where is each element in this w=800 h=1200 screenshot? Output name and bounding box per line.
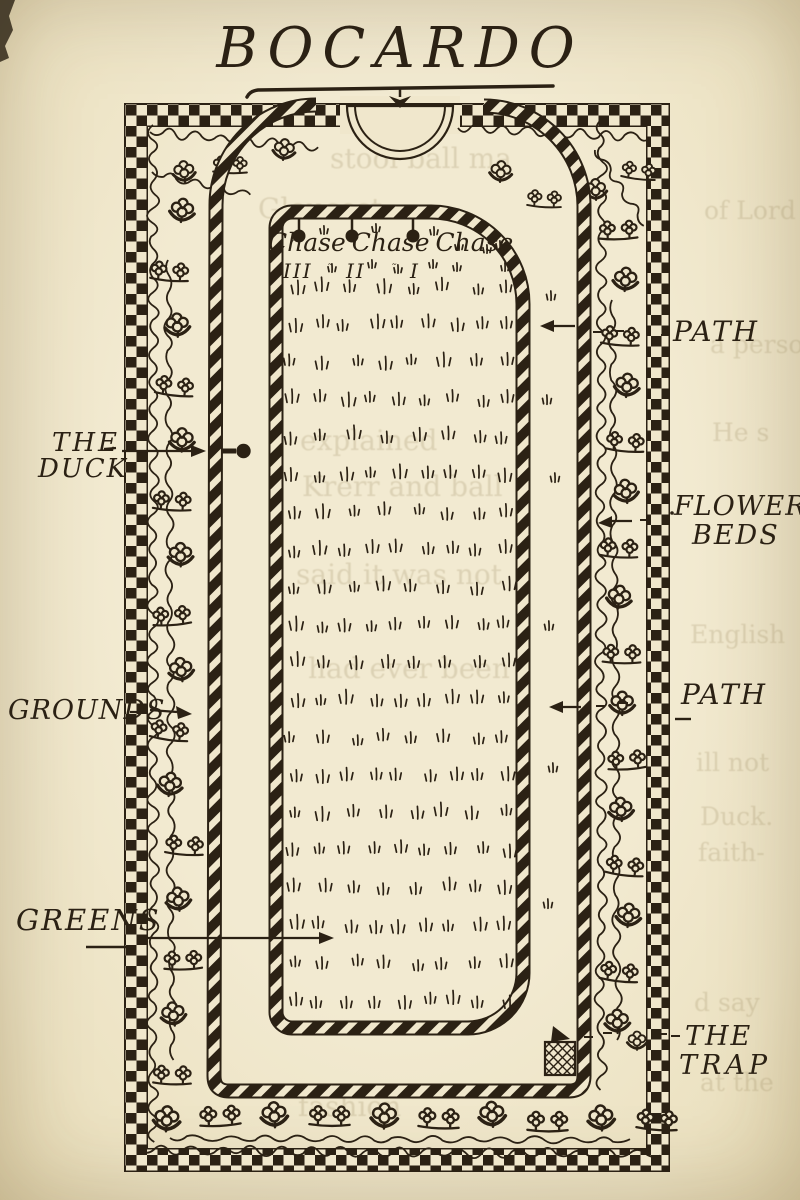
chase-numeral: II: [346, 259, 366, 283]
entrance-arch: [339, 104, 461, 159]
label-grounds: GROUNDS: [8, 697, 166, 724]
label-flower-beds-line2: BEDS: [692, 522, 780, 549]
chase-word: Chase: [436, 230, 514, 255]
court-wall: [276, 212, 523, 1028]
label-path-lower: PATH: [681, 681, 767, 709]
label-the-trap-line2: TRAP: [679, 1052, 771, 1079]
label-path-upper: PATH: [673, 318, 759, 346]
chase-word: Chase: [352, 230, 430, 255]
chase-annotations: Chase Chase Chase III ˜ II ˜ I: [268, 230, 478, 290]
chase-words: Chase Chase Chase: [268, 230, 478, 255]
chase-numeral: I: [410, 259, 420, 283]
bocardo-plan-diagram: [0, 0, 800, 1200]
book-page: stool ball maGloucestof Lorda persoHe se…: [0, 0, 800, 1200]
label-the-trap-line1: THE: [685, 1023, 752, 1050]
label-greens: GREENS: [16, 906, 161, 935]
label-the-duck-line2: DUCK: [38, 456, 128, 482]
ditto-mark: ˜: [390, 262, 396, 276]
trap-flag: [551, 1026, 570, 1042]
chase-numeral: III: [283, 259, 313, 283]
chase-word: Chase: [268, 230, 346, 255]
label-the-duck-line1: THE: [52, 430, 120, 456]
label-flower-beds-line1: FLOWER: [674, 493, 800, 520]
diagram-title: BOCARDO: [0, 16, 800, 81]
ditto-mark: ˜: [326, 262, 332, 276]
